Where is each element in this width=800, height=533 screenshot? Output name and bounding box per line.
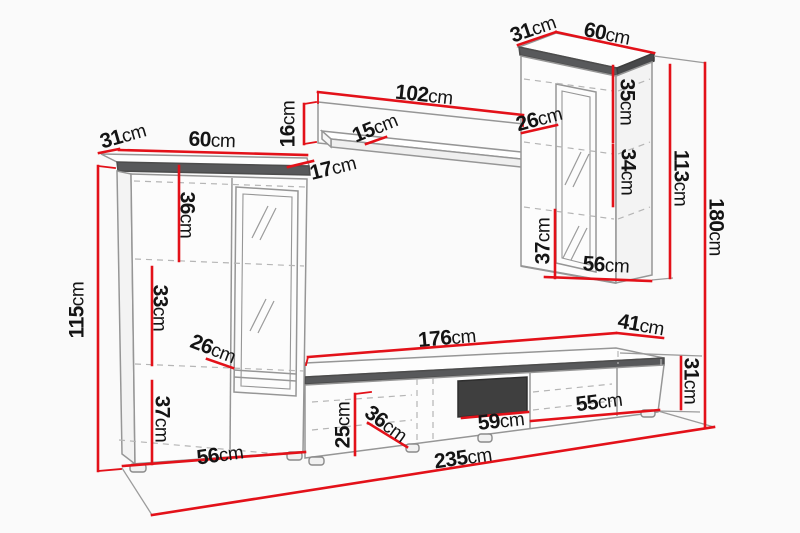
dim-hanging-cabinet-base-width: 56cm: [582, 253, 630, 276]
dim-tv-stand-front-height: 25cm: [333, 402, 354, 449]
dim-hanging-cabinet-middle-section: 34cm: [618, 149, 639, 196]
dim-tall-cabinet-middle-section: 33cm: [150, 285, 171, 332]
dim-hanging-cabinet-bottom-section: 37cm: [533, 218, 554, 265]
dim-tall-cabinet-height: 115cm: [67, 282, 88, 339]
dim-tv-stand-top-length: 176cm: [417, 325, 476, 351]
dim-tv-stand-right-height: 31cm: [681, 358, 702, 405]
dim-hanging-cabinet-height: 113cm: [671, 150, 692, 207]
dim-tall-cabinet-width: 60cm: [188, 129, 235, 152]
tall-cabinet: [101, 154, 310, 472]
dim-hanging-cabinet-top-section: 35cm: [617, 79, 638, 126]
dim-tv-stand-right-door-width: 55cm: [575, 389, 624, 416]
dim-tall-cabinet-top-section: 36cm: [177, 192, 198, 239]
dim-overall-height: 180cm: [706, 198, 727, 256]
dim-wall-shelf-height: 16cm: [278, 101, 299, 148]
dim-tv-stand-niche-width: 59cm: [477, 408, 526, 434]
dim-tall-cabinet-bottom-section: 37cm: [152, 396, 173, 443]
furniture-dimension-diagram: 31cm 60cm 115cm 36cm 33cm 26cm 37cm 56cm…: [0, 0, 800, 533]
